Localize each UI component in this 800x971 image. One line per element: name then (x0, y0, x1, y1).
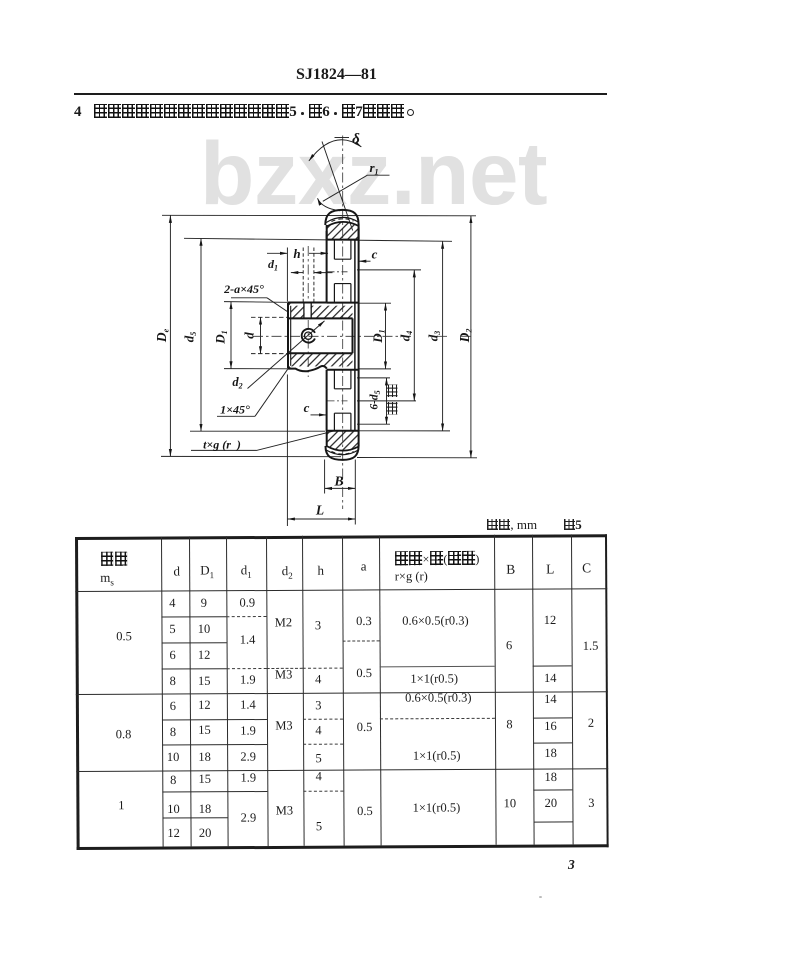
svg-text:d: d (242, 332, 257, 339)
svg-text:De: De (154, 328, 171, 343)
svg-text:D1: D1 (370, 329, 387, 343)
svg-text:6-d5: 6-d5 (369, 390, 383, 409)
svg-text:d3: d3 (426, 331, 443, 342)
svg-text:1×45°: 1×45° (220, 403, 250, 417)
svg-text:D1: D1 (213, 330, 230, 344)
svg-text:L: L (315, 503, 324, 518)
svg-text:t×g (r ): t×g (r ) (203, 438, 241, 452)
svg-text:d4: d4 (398, 331, 415, 342)
svg-text:D2: D2 (457, 329, 474, 344)
svg-text:c: c (372, 247, 378, 262)
svg-text:B: B (333, 474, 343, 489)
svg-text:c: c (304, 400, 310, 415)
svg-text:2-a×45°: 2-a×45° (223, 282, 264, 296)
svg-text:d2: d2 (232, 375, 242, 391)
svg-text:d1: d1 (268, 257, 278, 273)
svg-text:r1: r1 (369, 160, 378, 177)
svg-text:h: h (293, 246, 300, 261)
svg-text:d5: d5 (182, 332, 199, 343)
svg-text:δ: δ (352, 132, 360, 148)
